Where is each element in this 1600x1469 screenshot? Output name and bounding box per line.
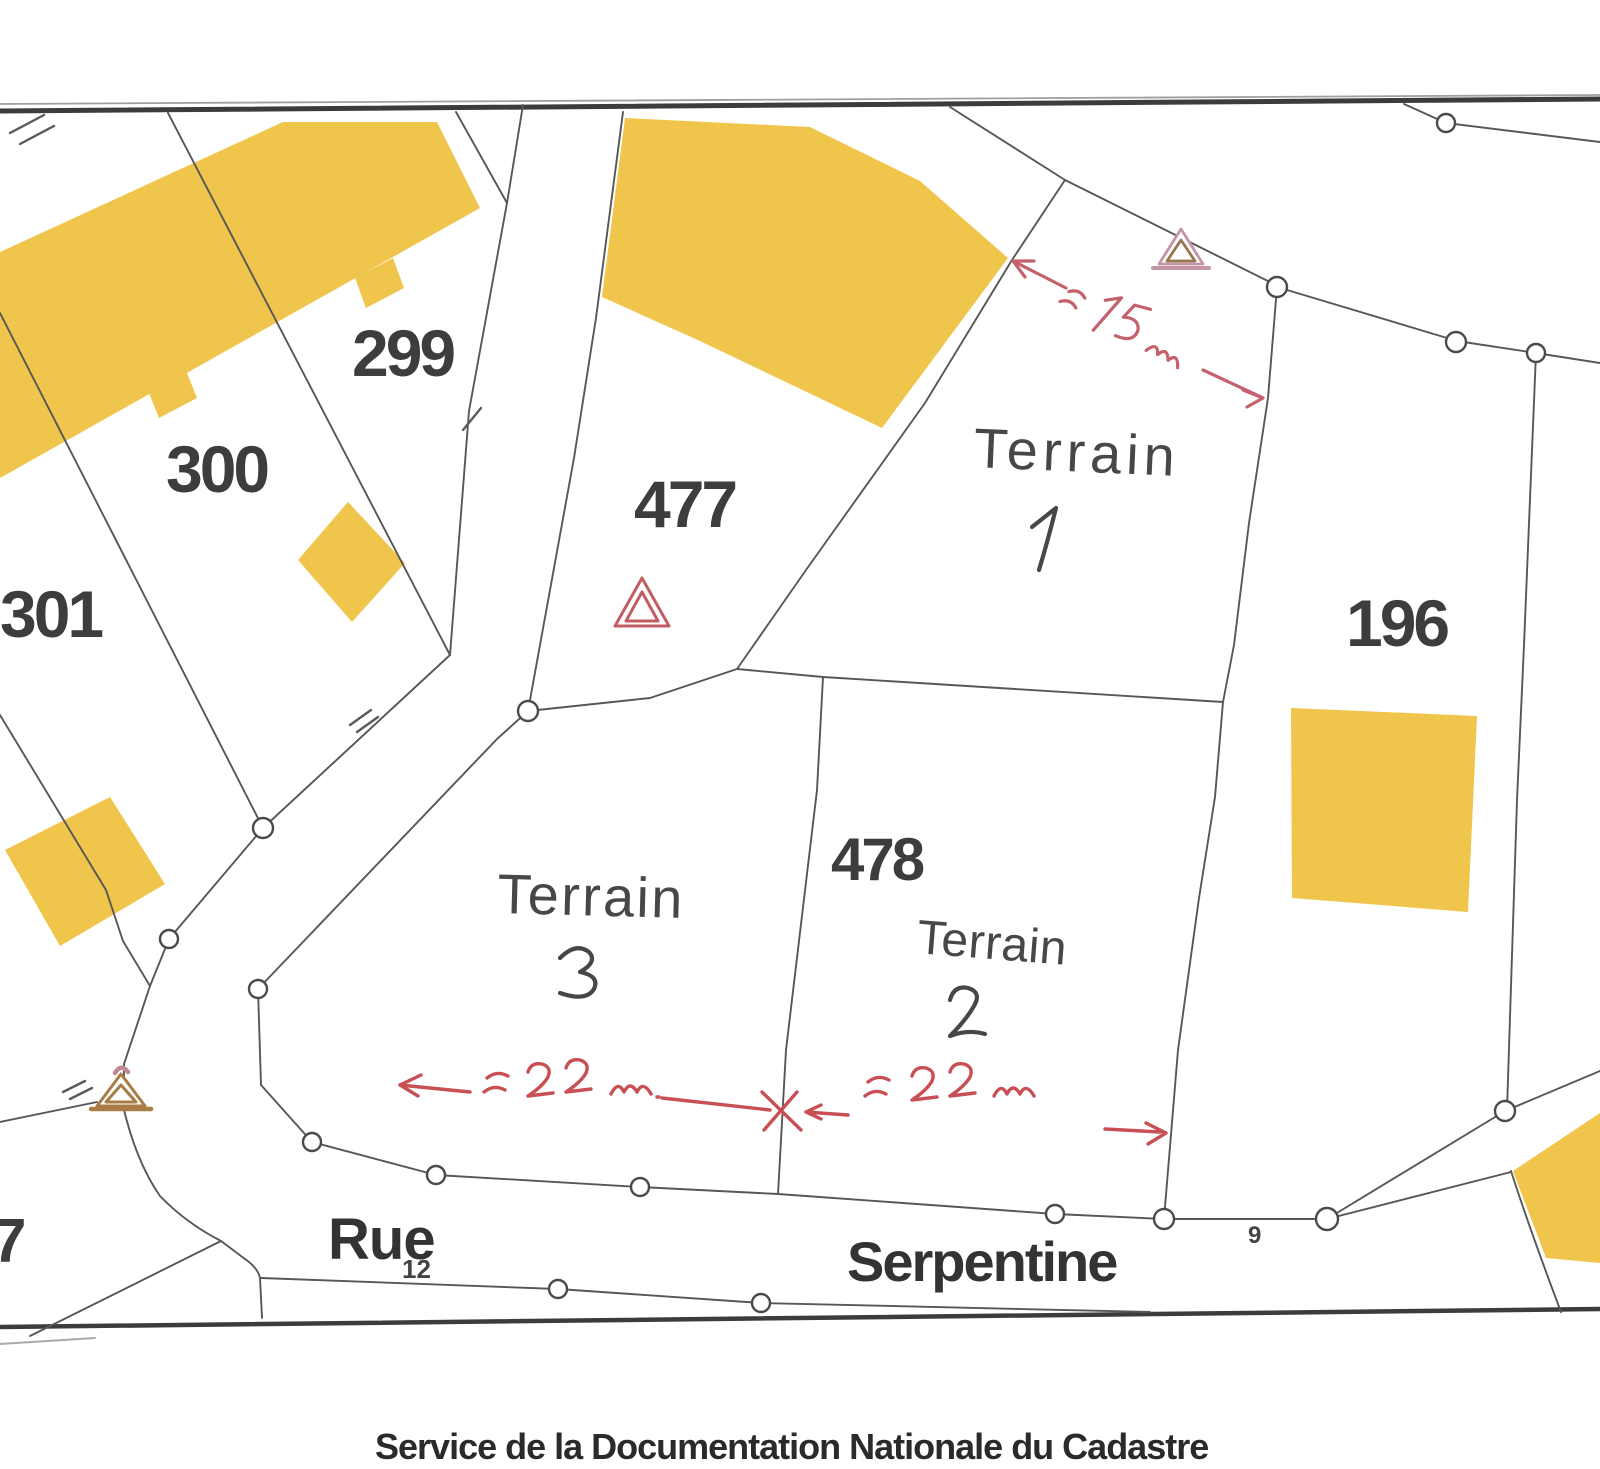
svg-text:196: 196: [1346, 586, 1448, 660]
svg-text:Terrain: Terrain: [972, 416, 1181, 488]
svg-text:Rue: Rue: [328, 1207, 435, 1272]
svg-text:477: 477: [634, 467, 735, 541]
svg-text:Serpentine: Serpentine: [847, 1230, 1117, 1293]
svg-text:300: 300: [166, 432, 267, 506]
svg-text:Terrain: Terrain: [497, 862, 686, 930]
svg-text:9: 9: [1248, 1222, 1261, 1249]
svg-text:478: 478: [831, 826, 924, 893]
svg-text:7: 7: [0, 1207, 26, 1276]
svg-text:299: 299: [352, 316, 454, 390]
svg-text:Service de la Documentation Na: Service de la Documentation Nationale du…: [375, 1426, 1208, 1467]
svg-text:301: 301: [0, 577, 102, 651]
